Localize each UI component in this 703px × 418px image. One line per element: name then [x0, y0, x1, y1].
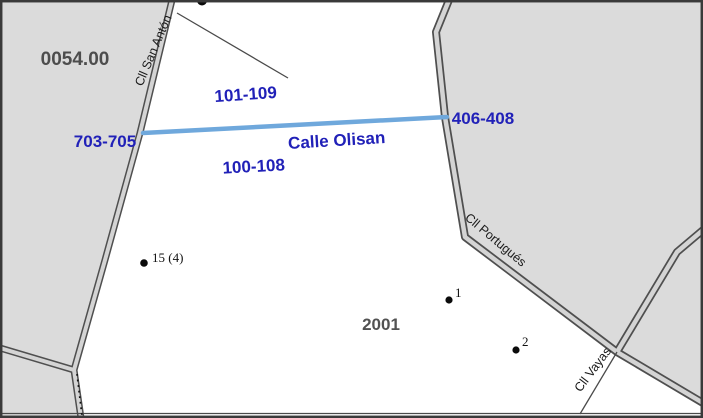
point-marker-2 — [512, 346, 519, 353]
point-label-1: 1 — [455, 285, 462, 300]
highlighted-street-olisan[interactable] — [143, 117, 447, 133]
point-marker-1 — [445, 296, 452, 303]
point-label-15-4: 15 (4) — [152, 250, 183, 265]
parcel-code-label: 0054.00 — [41, 49, 110, 70]
street-label-olisan: Calle Olisan — [288, 128, 386, 153]
block-label-2001: 2001 — [362, 315, 400, 334]
map-svg: 0054.00 Cll San Antón 101-109 703-705 Ca… — [0, 0, 703, 418]
address-range-703-705: 703-705 — [74, 132, 136, 151]
boundary-line-north — [177, 13, 288, 78]
address-range-101-109: 101-109 — [214, 83, 278, 106]
street-label-vayas: Cll Vayas — [572, 345, 614, 395]
point-label-2: 2 — [522, 334, 529, 349]
address-range-406-408: 406-408 — [452, 109, 514, 128]
address-range-100-108: 100-108 — [222, 155, 285, 177]
point-marker-15 — [140, 259, 148, 267]
cadastral-map-canvas[interactable]: 0054.00 Cll San Antón 101-109 703-705 Ca… — [0, 0, 703, 418]
